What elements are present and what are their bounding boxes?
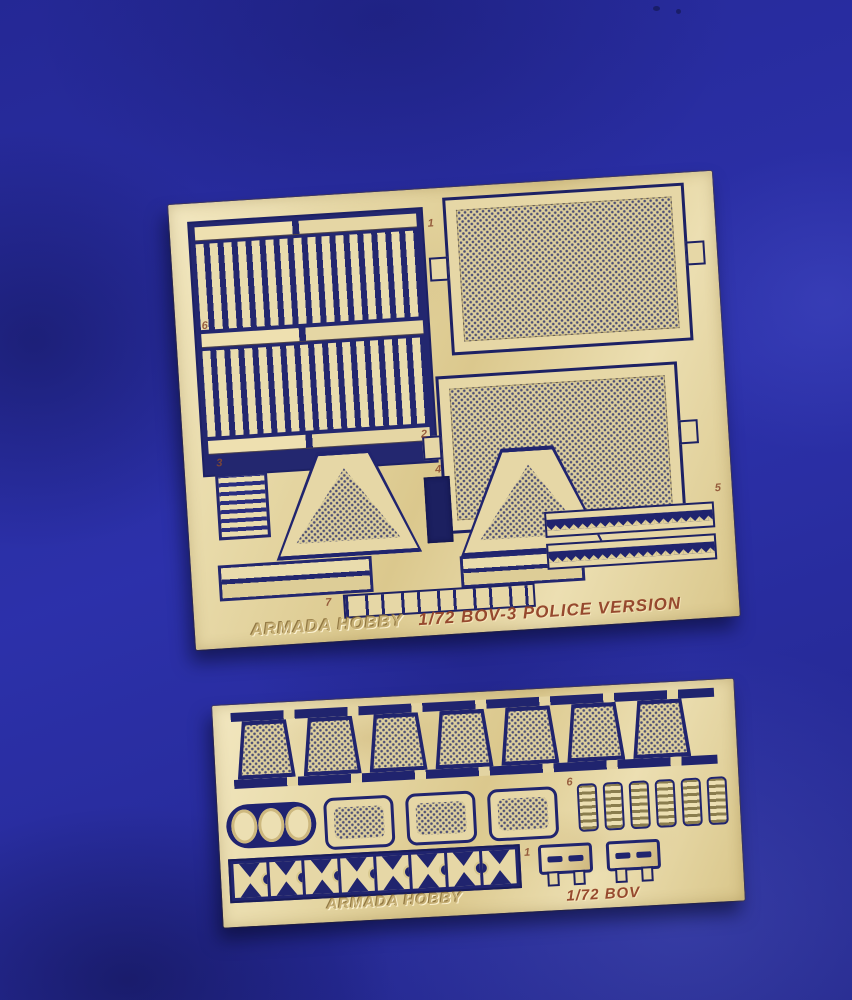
part-window-grille (630, 698, 691, 759)
sawtooth-teeth (546, 509, 712, 530)
hinge-hole (482, 863, 487, 874)
part-slotted-plate (606, 839, 661, 872)
part-rounded-grilles (323, 786, 563, 850)
mesh-screen (437, 713, 490, 766)
photo-scene: 6 1 2 3 4 5 (0, 0, 852, 1000)
part-spring-grid (215, 471, 271, 540)
fabric-speck (653, 6, 660, 11)
sprue-tab (685, 240, 705, 265)
hinge-link (304, 859, 338, 895)
plate-slot (568, 855, 583, 862)
part-louver (603, 782, 625, 831)
part-label-7: 7 (325, 598, 332, 609)
hinge-hole (440, 865, 445, 876)
bottom-etched-fret: 6 1 (212, 679, 745, 928)
part-label-4: 4 (435, 464, 442, 475)
plate-slot (615, 852, 630, 859)
light-ring (230, 809, 258, 844)
hinge-link (411, 853, 445, 889)
part-rail-left (221, 559, 371, 598)
mesh-screen (239, 723, 292, 776)
sprue-cutout (424, 476, 454, 544)
hinge-hole (263, 874, 268, 885)
hinge-link (233, 862, 267, 898)
hinge-link (376, 855, 410, 891)
mesh-screen (415, 801, 467, 836)
part-label-2: 2 (421, 429, 428, 440)
mesh-screen (333, 805, 385, 840)
part-label-6: 6 (201, 321, 208, 332)
part-window-grille (433, 708, 494, 769)
part-rounded-grille (405, 790, 478, 846)
part-mesh-panel-1 (442, 183, 693, 356)
mesh-screen (569, 706, 622, 759)
sprue-tab (429, 257, 449, 282)
part-louver (706, 776, 728, 825)
part-louver (680, 778, 702, 827)
part-window-grille (564, 702, 625, 763)
part-louver (629, 780, 651, 829)
hinge-hole (476, 863, 481, 874)
hinge-link (269, 861, 303, 897)
part-slotted-plates (538, 838, 680, 891)
fret-scale: 1/72 BOV (566, 884, 641, 905)
part-label-1: 1 (524, 848, 531, 859)
part-mudguard-left (270, 446, 422, 561)
part-rounded-grille (323, 795, 396, 851)
part-louver (577, 783, 599, 832)
hinge-hole (369, 868, 374, 879)
hinge-link (340, 857, 374, 893)
plate-slot (636, 851, 651, 858)
part-window-grille (301, 715, 362, 776)
sawtooth-strip (546, 533, 717, 570)
mesh-screen (503, 709, 556, 762)
mesh-screen (456, 196, 680, 341)
part-louver (654, 779, 676, 828)
part-light-cluster (225, 801, 317, 850)
slat-row-lower (202, 337, 429, 437)
part-slotted-plate (538, 842, 593, 875)
part-rounded-grille (487, 786, 560, 842)
hinge-link (447, 851, 481, 887)
part-window-grille (498, 705, 559, 766)
sawtooth-teeth (548, 541, 714, 562)
part-label-3: 3 (216, 458, 223, 469)
scale-text: 1/72 BOV (566, 884, 641, 905)
light-ring (284, 806, 312, 841)
mesh-screen (635, 702, 688, 755)
plate-slot (547, 856, 562, 863)
slat-row-upper (196, 230, 423, 330)
part-window-grille (235, 719, 296, 780)
part-slat-grille (189, 209, 436, 475)
mesh-screen (371, 716, 424, 769)
mesh-screen (305, 720, 358, 773)
part-window-grille (367, 712, 428, 773)
top-etched-fret: 6 1 2 3 4 5 (168, 171, 740, 650)
hinge-link (482, 849, 516, 885)
hinge-hole (405, 867, 410, 878)
sprue-tab (679, 419, 699, 444)
hinge-hole (298, 872, 303, 883)
part-label-5: 5 (715, 483, 722, 494)
light-ring (257, 807, 285, 842)
brand-text: ARMADA HOBBY (250, 611, 404, 640)
part-louver-set (577, 775, 729, 833)
hinge-hole (334, 870, 339, 881)
fabric-speck (676, 9, 681, 14)
part-label-1: 1 (427, 218, 434, 229)
part-sawtooth-strips (544, 501, 717, 570)
mesh-screen (497, 797, 549, 832)
part-label-6: 6 (566, 777, 573, 788)
